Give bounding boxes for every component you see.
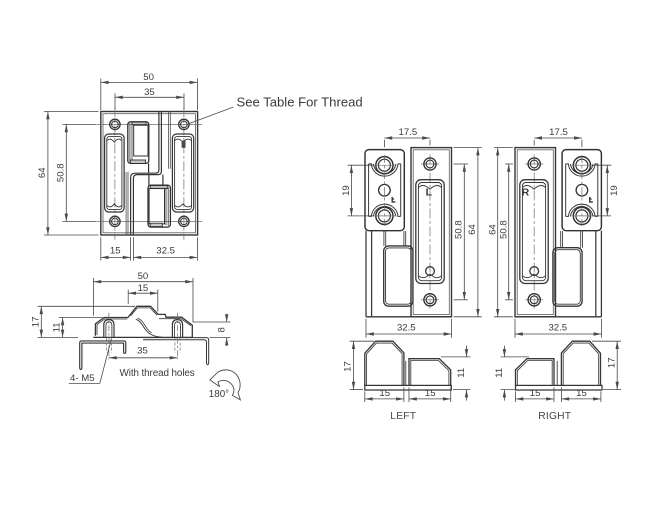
svg-text:15: 15 bbox=[138, 283, 149, 294]
svg-text:15: 15 bbox=[530, 388, 541, 399]
svg-text:17.5: 17.5 bbox=[399, 127, 418, 138]
svg-text:R: R bbox=[522, 187, 530, 199]
svg-text:50.8: 50.8 bbox=[454, 220, 465, 239]
svg-text:15: 15 bbox=[379, 388, 390, 399]
svg-text:17: 17 bbox=[343, 361, 354, 372]
svg-text:15: 15 bbox=[576, 388, 587, 399]
svg-text:See Table For Thread: See Table For Thread bbox=[237, 95, 363, 110]
svg-text:8: 8 bbox=[216, 327, 227, 332]
svg-text:19: 19 bbox=[341, 185, 352, 196]
svg-text:19: 19 bbox=[609, 185, 620, 196]
svg-text:32.5: 32.5 bbox=[397, 322, 416, 333]
svg-text:50.8: 50.8 bbox=[56, 163, 67, 182]
svg-text:With thread holes: With thread holes bbox=[120, 368, 195, 379]
svg-text:15: 15 bbox=[110, 246, 121, 257]
svg-text:17: 17 bbox=[607, 357, 618, 368]
svg-text:64: 64 bbox=[467, 224, 478, 235]
svg-text:4- M5: 4- M5 bbox=[70, 373, 95, 384]
svg-text:RIGHT: RIGHT bbox=[538, 411, 572, 422]
svg-text:11: 11 bbox=[52, 322, 63, 332]
svg-text:32.5: 32.5 bbox=[548, 322, 567, 333]
svg-text:15: 15 bbox=[425, 388, 436, 399]
svg-text:17.5: 17.5 bbox=[549, 127, 568, 138]
svg-text:64: 64 bbox=[487, 224, 498, 235]
svg-text:11: 11 bbox=[494, 368, 505, 378]
svg-text:35: 35 bbox=[144, 87, 155, 98]
svg-text:180°: 180° bbox=[209, 389, 229, 400]
svg-text:50: 50 bbox=[143, 72, 154, 83]
svg-text:17: 17 bbox=[30, 317, 41, 328]
svg-text:35: 35 bbox=[137, 345, 148, 356]
svg-text:11: 11 bbox=[456, 368, 467, 378]
svg-text:L: L bbox=[426, 187, 433, 199]
svg-text:32.5: 32.5 bbox=[156, 246, 175, 257]
svg-text:50.8: 50.8 bbox=[499, 220, 510, 239]
svg-text:LEFT: LEFT bbox=[390, 411, 416, 422]
svg-text:50: 50 bbox=[138, 271, 149, 282]
svg-text:64: 64 bbox=[37, 167, 48, 178]
